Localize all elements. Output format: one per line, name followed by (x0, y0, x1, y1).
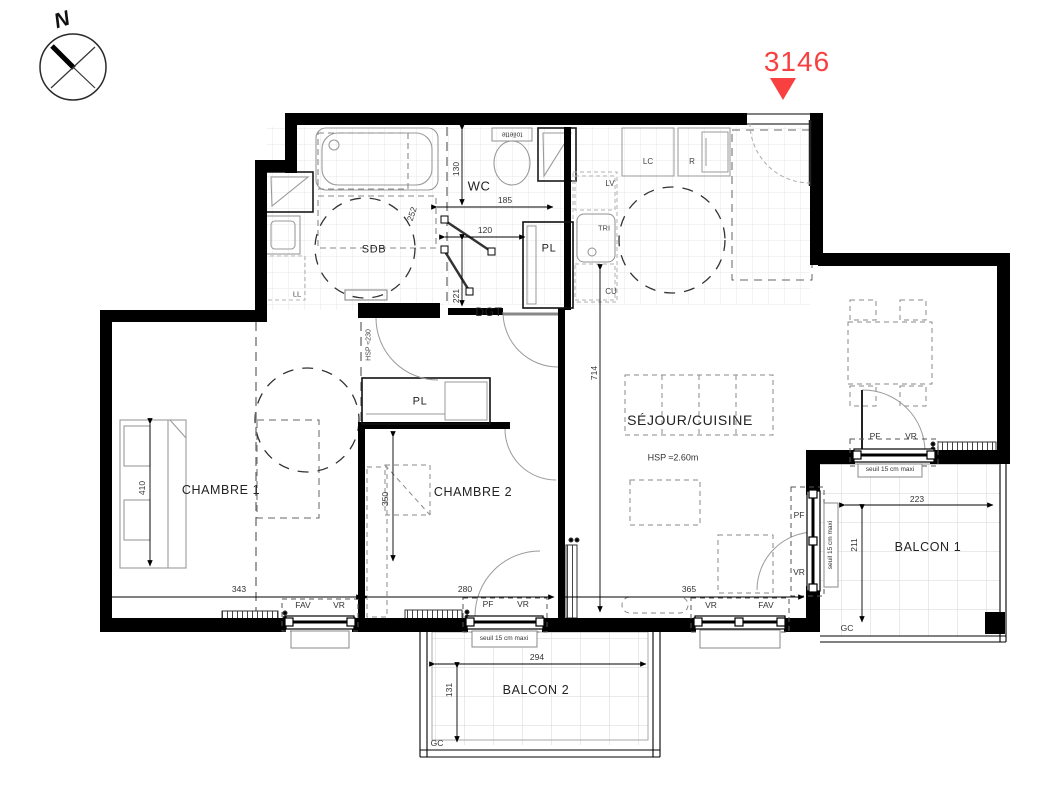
window-label-sejour-fav: FAV (758, 601, 773, 610)
dim-365: 365 (682, 585, 696, 594)
window-label-sejour-vr: VR (705, 601, 717, 610)
note-seuil-balcon1-top: seuil 15 cm maxi (866, 467, 914, 474)
dim-343: 343 (232, 585, 246, 594)
dim-131: 131 (445, 683, 454, 697)
room-label-dgt: DGT (475, 306, 502, 318)
dim-130: 130 (452, 162, 461, 176)
bed (120, 420, 186, 568)
room-label-balcon1: BALCON 1 (895, 541, 962, 554)
note-hsp-sejour: HSP ≈2.60m (648, 454, 699, 463)
appliance-ll: LL (293, 290, 301, 298)
appliance-cu: CU (605, 288, 617, 296)
note-toilette: toilette (502, 131, 523, 138)
dim-120: 120 (478, 226, 492, 235)
note-seuil-chambre2: seuil 15 cm maxi (480, 636, 528, 643)
appliance-lv: LV (605, 180, 614, 188)
room-label-wc: WC (468, 180, 491, 193)
lot-marker-icon (770, 78, 796, 100)
door-openings (747, 114, 810, 124)
dim-211: 211 (850, 538, 859, 552)
appliance-tri: TRI (598, 224, 610, 232)
compass-icon (40, 34, 106, 100)
window-label-chambre2-pf: PF (483, 600, 494, 609)
window-label-dining-pf: PF (870, 432, 881, 441)
floor-tile-grids (267, 127, 1000, 745)
note-hsp-dgt: HSP ≈230 (366, 329, 373, 361)
floor-plan: N 3146 SDB WC DGT PL PL CHAMBRE 1 CHAMBR… (0, 0, 1044, 800)
dim-350: 350 (381, 492, 390, 506)
dim-294: 294 (530, 653, 544, 662)
gc-balcon1: GC (841, 624, 854, 633)
room-label-pl-bedroom: PL (413, 397, 428, 408)
window-label-chambre2-vr: VR (517, 600, 529, 609)
room-label-balcon2: BALCON 2 (503, 684, 570, 697)
note-seuil-balcon1-side: seuil 15 cm maxi (828, 521, 835, 569)
room-label-sdb: SDB (362, 245, 386, 256)
window-label-side-pf: PF (794, 511, 805, 520)
dim-223: 223 (910, 495, 924, 504)
window-label-side-vr: VR (793, 568, 805, 577)
lot-number: 3146 (764, 48, 830, 76)
room-label-chambre1: CHAMBRE 1 (182, 484, 260, 497)
window-label-dining-vr: VR (905, 432, 917, 441)
dim-221: 221 (452, 289, 461, 303)
dim-714: 714 (590, 366, 599, 380)
room-label-sejour: SÉJOUR/CUISINE (627, 413, 753, 427)
room-label-chambre2: CHAMBRE 2 (434, 486, 512, 499)
gc-balcon2: GC (431, 739, 444, 748)
dim-280: 280 (458, 585, 472, 594)
window-label-chambre1-vr: VR (333, 601, 345, 610)
room-label-pl-hall: PL (542, 244, 557, 255)
floor-plan-drawing (0, 0, 1044, 800)
dim-410: 410 (138, 481, 147, 495)
window-label-chambre1-fav: FAV (295, 601, 310, 610)
appliance-lc: LC (643, 158, 653, 166)
appliance-r: R (689, 158, 695, 166)
dim-185: 185 (498, 196, 512, 205)
